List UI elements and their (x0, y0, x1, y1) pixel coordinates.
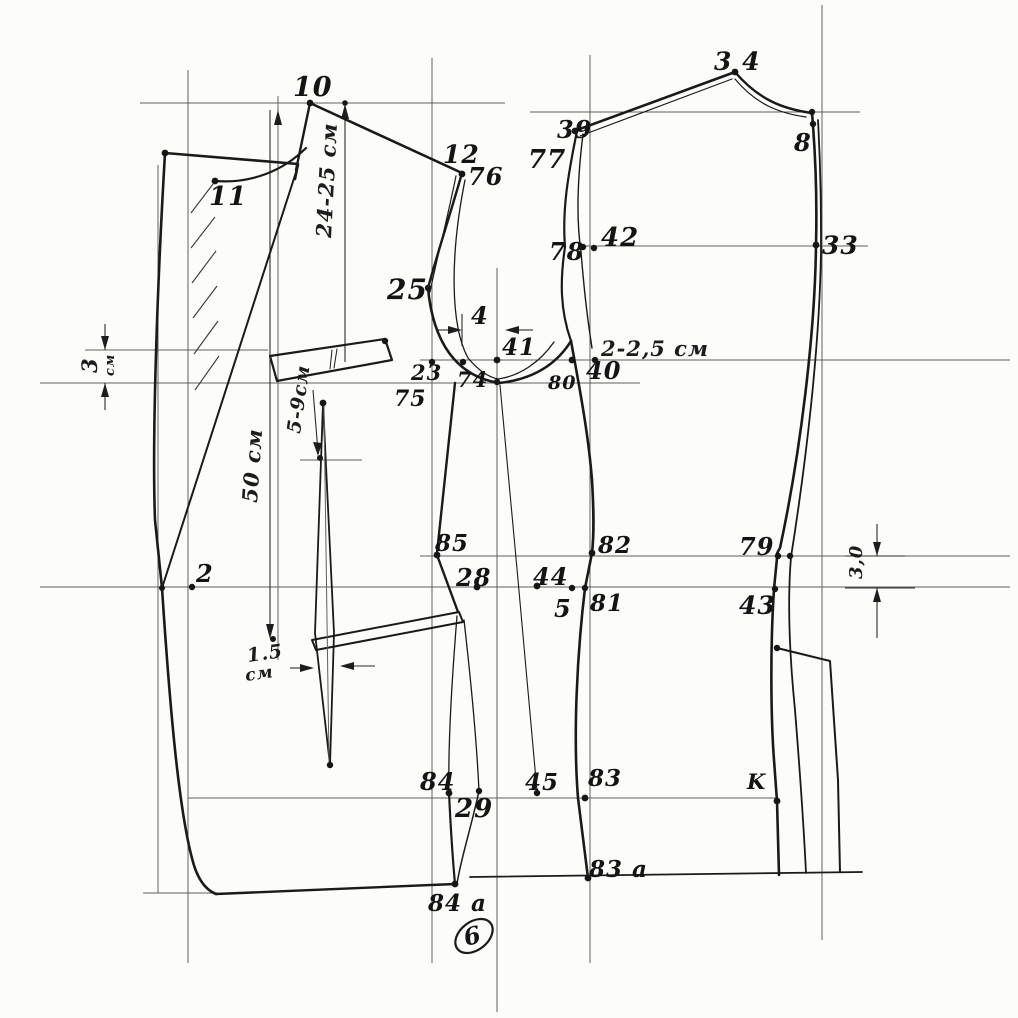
point-label-82: 82 (597, 532, 632, 559)
point-label-42: 42 (601, 223, 639, 253)
measurement-overlap-value: 3 (77, 357, 102, 373)
point-label-77: 77 (528, 145, 566, 175)
point-label-23: 23 (410, 360, 442, 385)
point-label-10: 10 (293, 72, 333, 103)
point-label-45: 45 (525, 769, 559, 796)
pattern-sheet: 10111276254412374804075397778423 4833285… (0, 0, 1018, 1018)
measurement-pocket-drop: 5-9см (283, 363, 314, 434)
armhole-curve (428, 288, 571, 383)
lapel-hatching (191, 184, 219, 390)
point-label-29: 29 (454, 794, 493, 824)
point-label-83a: 83 a (588, 856, 648, 883)
point-label-2: 2 (195, 559, 214, 588)
measurement-dart-width-unit: см (244, 662, 275, 686)
back-vent (777, 648, 840, 872)
point-label-84: 84 (419, 767, 455, 796)
sheet-number-value: 6 (460, 919, 484, 951)
point-label-75: 75 (394, 386, 427, 412)
measurement-overlap-unit: см (103, 354, 118, 376)
point-label-28: 28 (455, 563, 491, 592)
point-label-44: 44 (533, 562, 568, 591)
point-label-81: 81 (589, 590, 624, 617)
construction-lines (40, 5, 1010, 1012)
point-label-33: 33 (822, 231, 859, 260)
point-label-11: 11 (209, 182, 247, 212)
point-label-25: 25 (386, 273, 428, 306)
point-label-4: 4 (471, 301, 489, 330)
point-label-k: K (746, 769, 766, 794)
back-shoulder-seam (577, 72, 735, 130)
point-label-80: 80 (547, 372, 576, 394)
point-label-84a: 84 a (427, 890, 487, 917)
point-label-39: 39 (557, 115, 592, 144)
point-label-8: 8 (793, 128, 812, 157)
point-label-41: 41 (502, 334, 536, 361)
point-label-74: 74 (457, 367, 488, 392)
front-hem (216, 884, 455, 894)
measurement-side-ease: 3,0 (846, 545, 867, 579)
measurement-length: 50 см (237, 427, 267, 503)
point-label-79: 79 (739, 532, 774, 561)
sheet-number: 6 (449, 912, 499, 960)
front-piece-outline (154, 103, 455, 894)
point-label-43: 43 (739, 591, 776, 620)
point-label-85: 85 (434, 530, 469, 557)
pocket-flap (270, 339, 392, 381)
measurement-back-depth: 24-25 см (311, 122, 342, 239)
jacket-pattern-drawing: 10111276254412374804075397778423 4833285… (0, 0, 1018, 1018)
point-label-76: 76 (468, 162, 503, 191)
point-label-78: 78 (549, 237, 584, 266)
front-edge (154, 153, 165, 588)
back-piece-outline (470, 72, 862, 877)
back-hem (470, 872, 862, 877)
measurement-gorge-width: 2-2,5 см (600, 336, 709, 361)
point-label-5: 5 (554, 594, 572, 623)
center-back-seam (771, 113, 816, 875)
point-label-34: 3 4 (714, 47, 761, 76)
point-label-83: 83 (587, 765, 622, 792)
back-neck-curve (735, 72, 812, 113)
